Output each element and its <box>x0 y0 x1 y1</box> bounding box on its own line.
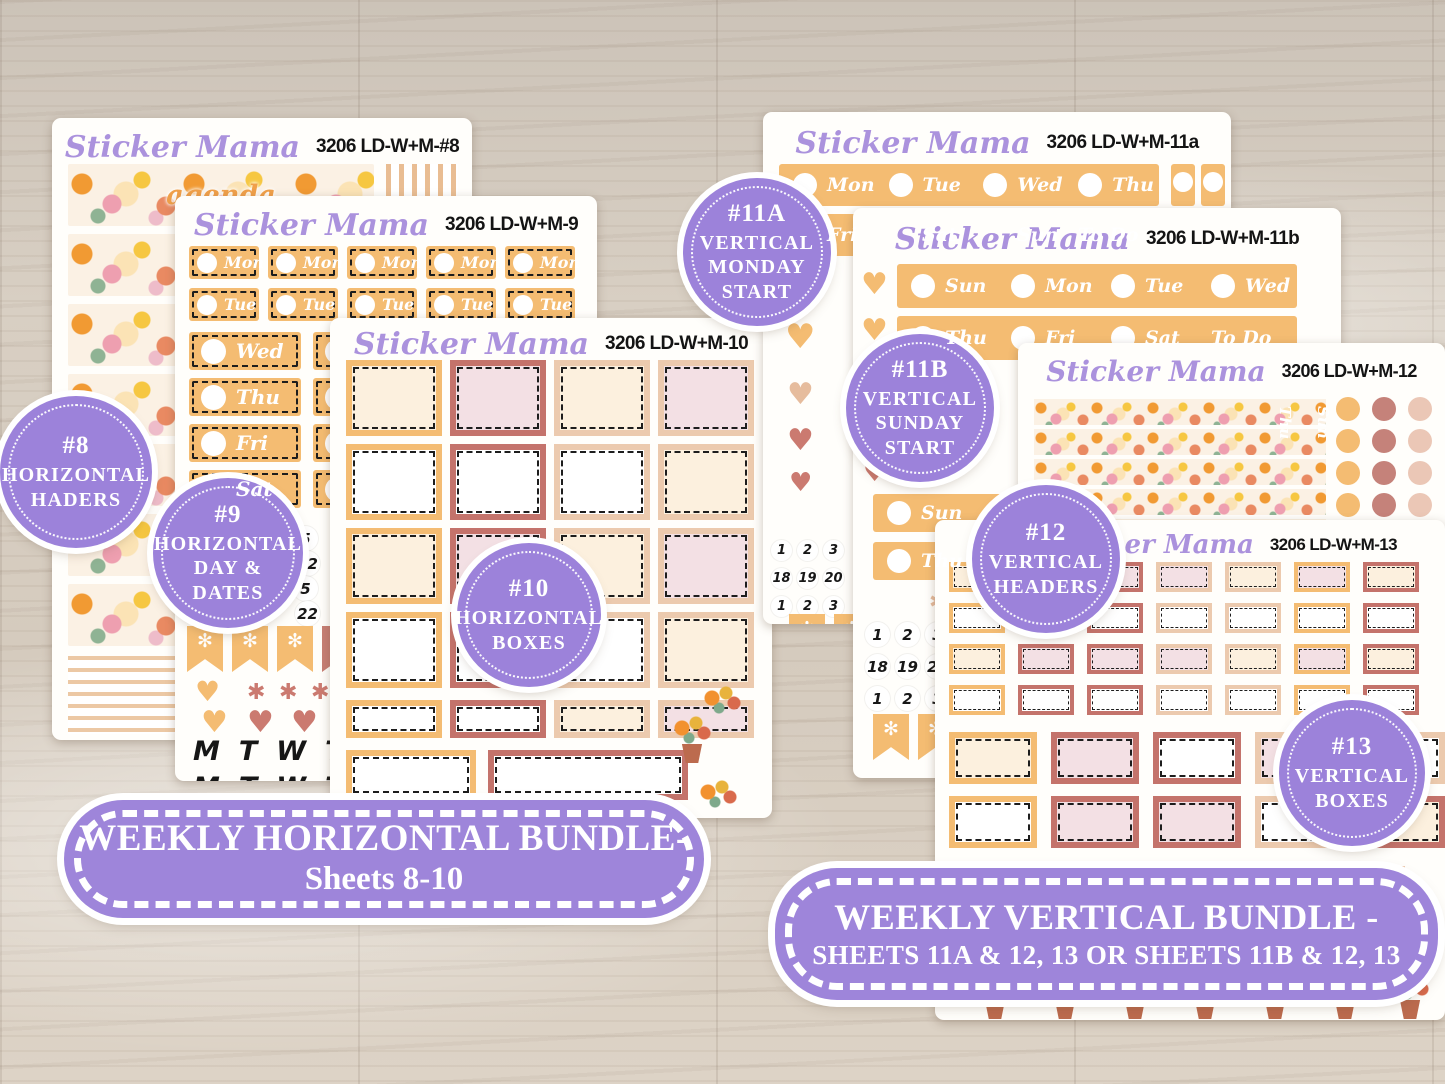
sheet-header: Sticker Mama 3206 LD-W+M-9 <box>175 208 597 242</box>
flower-cluster-sticker <box>702 686 742 714</box>
date-chip: 3 <box>823 540 844 561</box>
badge-line: VERTICAL <box>1295 764 1409 788</box>
circle-dot <box>276 295 296 315</box>
circle-dot <box>889 173 913 197</box>
day-label: Sat <box>922 224 957 246</box>
sheet-code: 3206 LD-W+M-12 <box>1282 361 1417 382</box>
day-label: Mon <box>382 253 422 272</box>
mini-tab-sticker <box>1171 164 1195 206</box>
banner-line-2: SHEETS 11A & 12, 13 OR SHEETS 11B & 12, … <box>812 939 1400 971</box>
sheet-code: 3206 LD-W+M-13 <box>1270 535 1397 555</box>
heart-icon: ♥ <box>861 270 888 300</box>
day-sticker-row: Tue Tue Tue Tue Tue <box>189 288 575 321</box>
date-chip: 1 <box>771 540 792 561</box>
bar-segment: Mon <box>997 274 1097 298</box>
badge-line: VERTICAL <box>989 550 1103 574</box>
badge-number: #9 <box>215 501 242 529</box>
box-sticker <box>1153 796 1241 848</box>
dot-sticker <box>1336 461 1360 485</box>
pot <box>1123 1000 1147 1019</box>
pot <box>1193 1000 1217 1019</box>
letter-m: M <box>193 736 220 767</box>
day-sticker-tue: Tue <box>347 288 417 321</box>
small-box-sticker <box>1363 644 1419 674</box>
flag-sticker: ✻ <box>789 614 825 624</box>
letter-t: T <box>239 736 257 767</box>
badge-line: HADERS <box>31 488 122 512</box>
sheet-header: Sticker Mama 3206 LD-W+M-10 <box>330 328 772 360</box>
pot <box>1333 1000 1357 1019</box>
day-sticker-tue: Tue <box>505 288 575 321</box>
day-label: To Do <box>1211 327 1271 349</box>
small-box-sticker <box>1294 644 1350 674</box>
small-box-sticker <box>949 685 1005 715</box>
badge-line: BOXES <box>492 631 566 655</box>
badge-11b: #11B VERTICAL SUNDAY START <box>846 334 994 482</box>
flower-icon: ✻ <box>197 630 213 672</box>
circle-dot <box>276 253 296 273</box>
box-sticker <box>346 444 442 520</box>
circle-dot <box>197 253 217 273</box>
flower-icon: ✻ <box>883 718 899 760</box>
badge-8: #8 HORIZONTAL HADERS <box>0 396 152 548</box>
flag-sticker: ✻ <box>232 626 268 672</box>
day-label: Thu <box>236 385 280 409</box>
badge-number: #10 <box>509 575 550 603</box>
badge-line: VERTICAL <box>863 387 977 411</box>
flower-icon: ✻ <box>799 618 815 624</box>
circle-dot <box>1203 172 1223 192</box>
circle-dot <box>887 549 911 573</box>
dot-sticker <box>1372 429 1396 453</box>
asterisk-icon: ✱ <box>247 682 265 704</box>
flag-sticker: ✻ <box>187 626 223 672</box>
circle-dot <box>1011 274 1035 298</box>
sheet-header: Sticker Mama 3206 LD-W+M-#8 <box>52 130 472 164</box>
small-box-sticker <box>1363 603 1419 633</box>
day-label: Thu <box>945 327 987 349</box>
circle-dot <box>355 295 375 315</box>
bar-segment: Tue <box>1097 274 1197 298</box>
day-sticker-wed: Wed <box>189 332 301 370</box>
box-sticker <box>658 612 754 688</box>
circle-dot <box>434 253 454 273</box>
badge-number: #11A <box>728 200 786 228</box>
pot <box>1053 1000 1077 1019</box>
day-label: Sun <box>1017 224 1058 246</box>
dot-sticker <box>1408 493 1432 517</box>
circle-dot <box>201 431 226 456</box>
day-sticker-tue: Tue <box>426 288 496 321</box>
badge-line: DAY & <box>194 556 262 580</box>
half-box-sticker <box>450 700 546 738</box>
half-box-sticker <box>346 750 476 800</box>
day-label: Sun <box>1314 406 1332 439</box>
bar-segment: Wed <box>1197 274 1297 298</box>
date-chip: 18 <box>771 568 792 589</box>
day-label: Sat <box>1145 327 1180 349</box>
badge-line: START <box>885 436 956 460</box>
day-label: Tue <box>303 295 335 314</box>
day-label: Wed <box>1017 174 1062 196</box>
day-label: Thu <box>1276 406 1294 439</box>
heart-icon: ♥ <box>195 678 220 706</box>
sheet-code: 3206 LD-W+M-10 <box>605 333 748 355</box>
date-chip-row: 1 2 3 <box>771 540 844 561</box>
day-label: Fri <box>1045 327 1075 349</box>
box-sticker <box>658 360 754 436</box>
small-box-sticker <box>1156 644 1212 674</box>
badge-line: BOXES <box>1315 789 1389 813</box>
washi-strip <box>68 656 182 734</box>
box-sticker <box>450 360 546 436</box>
day-label: Mon <box>461 253 501 272</box>
letter-w: W <box>276 772 306 781</box>
circle-dot <box>1211 274 1235 298</box>
box-sticker <box>346 528 442 604</box>
box-sticker <box>554 360 650 436</box>
brand-title: Sticker Mama <box>795 126 1030 161</box>
small-box-sticker <box>949 644 1005 674</box>
small-box-sticker <box>1225 603 1281 633</box>
flag-sticker: ✻ <box>277 626 313 672</box>
asterisk-icon: ✱ <box>279 682 297 704</box>
letter-m: M <box>193 772 220 781</box>
box-sticker <box>1153 732 1241 784</box>
small-box-sticker <box>1156 685 1212 715</box>
banner-line-2: Sheets 8-10 <box>305 860 464 900</box>
sheet-header: Sticker Mama 3206 LD-W+M-11a <box>763 126 1231 160</box>
sheet-code: 3206 LD-W+M-9 <box>445 214 578 236</box>
small-box-sticker <box>1087 685 1143 715</box>
mini-tab-sticker <box>1201 164 1225 206</box>
circle-dot <box>201 339 226 364</box>
box-sticker <box>658 528 754 604</box>
day-bar-sun-wed: Sun Mon Tue Wed <box>897 264 1297 308</box>
day-label: Tue <box>540 295 572 314</box>
flower-icon: ✻ <box>287 630 303 672</box>
sheet-code: 3206 LD-W+M-11b <box>1146 228 1299 250</box>
date-chip-row: 18 19 20 <box>771 568 844 589</box>
date-chip: 2 <box>797 540 818 561</box>
dot-sticker <box>1372 493 1396 517</box>
small-box-sticker <box>1156 562 1212 592</box>
badge-line: START <box>722 280 793 304</box>
day-label: Mon <box>540 253 580 272</box>
dot-sticker <box>1372 461 1396 485</box>
day-label: Mon <box>1045 275 1093 297</box>
badge-line: SUNDAY <box>876 411 965 435</box>
dot-sticker <box>1336 429 1360 453</box>
box-sticker <box>554 444 650 520</box>
day-label: Sat <box>236 477 273 501</box>
heart-icon: ♥ <box>787 426 814 456</box>
day-label: Tue <box>461 295 493 314</box>
small-box-sticker <box>1018 685 1074 715</box>
day-label: Mon <box>303 253 343 272</box>
sheet-code: 3206 LD-W+M-#8 <box>316 136 459 158</box>
small-box-sticker <box>1087 644 1143 674</box>
flower-cluster <box>672 716 712 744</box>
small-box-sticker <box>1294 603 1350 633</box>
date-chip: 1 <box>865 686 890 711</box>
dot-sticker <box>1408 397 1432 421</box>
circle-dot <box>201 385 226 410</box>
day-label: Mon <box>827 174 875 196</box>
day-label: Fri <box>827 224 857 246</box>
day-label: Sun <box>945 275 986 297</box>
badge-line: HORIZONTAL <box>455 606 603 630</box>
day-sticker-tue: Tue <box>268 288 338 321</box>
day-label: Tue <box>224 295 256 314</box>
brand-title: Sticker Mama <box>354 327 589 362</box>
dot-sticker <box>1372 397 1396 421</box>
pot <box>983 1000 1007 1019</box>
box-sticker <box>450 444 546 520</box>
letter-w: W <box>276 736 306 767</box>
weekday-letter-row: M T W T <box>193 736 344 767</box>
day-label: Thu <box>921 550 963 572</box>
banner-horizontal-bundle: WEEKLY HORIZONTAL BUNDLE- Sheets 8-10 <box>64 800 704 918</box>
day-sticker-thu: Thu <box>189 378 301 416</box>
small-box-sticker <box>1225 685 1281 715</box>
circle-dot <box>513 295 533 315</box>
badge-line: HORIZONTAL <box>2 463 150 487</box>
circle-dot <box>887 501 911 525</box>
bar-segment: Thu <box>1064 173 1159 197</box>
banner-line-1: WEEKLY HORIZONTAL BUNDLE- <box>79 818 688 861</box>
badge-12: #12 VERTICAL HEADERS <box>972 485 1120 633</box>
badge-number: #11B <box>892 356 949 384</box>
badge-line: MONDAY <box>708 255 806 279</box>
badge-number: #8 <box>63 432 90 460</box>
badge-11a: #11A VERTICAL MONDAY START <box>683 178 831 326</box>
badge-line: VERTICAL <box>700 231 814 255</box>
dot-sticker <box>1408 429 1432 453</box>
flower-icon: ✻ <box>242 630 258 672</box>
bar-segment: Wed <box>969 173 1064 197</box>
day-sticker-mon: Mon <box>347 246 417 279</box>
badge-line: HORIZONTAL <box>154 532 302 556</box>
flag-sticker: ✻ <box>873 714 909 760</box>
box-sticker <box>949 796 1037 848</box>
small-box-sticker <box>1294 562 1350 592</box>
small-box-sticker <box>1018 644 1074 674</box>
circle-dot <box>513 253 533 273</box>
dot-sticker <box>1336 397 1360 421</box>
day-label: Wed <box>236 339 284 363</box>
date-chip: 2 <box>895 622 920 647</box>
sheet-header: Sticker Mama 3206 LD-W+M-12 <box>1018 355 1445 387</box>
brand-title: Sticker Mama <box>65 130 300 165</box>
box-sticker <box>346 360 442 436</box>
pot <box>1398 1000 1422 1019</box>
heart-icon: ♥ <box>291 708 318 738</box>
box-sticker <box>658 444 754 520</box>
asterisk-icon: ✱ <box>311 682 329 704</box>
day-sticker-mon: Mon <box>189 246 259 279</box>
half-box-sticker <box>346 700 442 738</box>
date-chip: 20 <box>823 568 844 589</box>
bar-segment: Sun <box>897 274 997 298</box>
day-label: Fri <box>236 431 268 455</box>
badge-number: #13 <box>1332 733 1373 761</box>
half-box-sticker <box>488 750 688 800</box>
date-chip: 19 <box>895 654 920 679</box>
day-bar-mon-thu: Mon Tue Wed Thu <box>779 164 1159 206</box>
brand-title: Sticker Mama <box>1046 355 1265 388</box>
badge-10: #10 HORIZONTAL BOXES <box>457 543 601 687</box>
bar-segment: Tue <box>875 173 970 197</box>
small-box-sticker <box>1363 562 1419 592</box>
day-sticker-fri: Fri <box>189 424 301 462</box>
heart-icon: ♥ <box>785 320 815 354</box>
day-label: Tue <box>382 295 414 314</box>
circle-dot <box>1173 172 1193 192</box>
dot-sticker <box>1408 461 1432 485</box>
day-label: Tue <box>923 174 961 196</box>
flower-cluster-sticker <box>698 780 738 808</box>
banner-line-1: WEEKLY VERTICAL BUNDLE - <box>834 897 1379 938</box>
circle-dot <box>197 295 217 315</box>
half-box-sticker <box>554 700 650 738</box>
badge-line: DATES <box>192 581 263 605</box>
dot-sticker <box>1336 493 1360 517</box>
banner-vertical-bundle: WEEKLY VERTICAL BUNDLE - SHEETS 11A & 12… <box>775 868 1438 1000</box>
circle-dot <box>434 295 454 315</box>
box-sticker <box>949 732 1037 784</box>
day-label: Mon <box>224 253 264 272</box>
pot <box>680 744 704 763</box>
badge-9: #9 HORIZONTAL DAY & DATES <box>153 478 303 628</box>
badge-number: #12 <box>1026 519 1067 547</box>
heart-icon: ♥ <box>201 708 228 738</box>
day-label: Tue <box>1145 275 1183 297</box>
letter-t: T <box>239 772 257 781</box>
day-sticker-mon: Mon <box>426 246 496 279</box>
brand-title: Sticker Mama <box>194 208 429 243</box>
circle-dot <box>1078 173 1102 197</box>
pot <box>1263 1000 1287 1019</box>
circle-dot <box>355 253 375 273</box>
circle-dot <box>911 274 935 298</box>
heart-icon: ♥ <box>247 708 274 738</box>
day-sticker-row: Mon Mon Mon Mon Mon <box>189 246 575 279</box>
date-chip: 18 <box>865 654 890 679</box>
box-sticker <box>1051 732 1139 784</box>
day-label: Thu <box>1112 174 1154 196</box>
sheet-code: 3206 LD-W+M-11a <box>1047 132 1199 154</box>
heart-icon: ♥ <box>861 316 888 346</box>
badge-line: HEADERS <box>993 575 1098 599</box>
heart-icon: ♥ <box>787 380 814 410</box>
circle-dot <box>983 173 1007 197</box>
box-sticker <box>1051 796 1139 848</box>
small-box-sticker <box>1156 603 1212 633</box>
date-chip: 22 <box>295 601 320 626</box>
circle-dot <box>1111 274 1135 298</box>
small-box-sticker <box>1225 644 1281 674</box>
floral-header-sticker <box>1034 459 1326 485</box>
day-sticker-mon: Mon <box>268 246 338 279</box>
date-chip: 1 <box>865 622 890 647</box>
flower-pot-sticker <box>672 716 712 763</box>
day-label: Wed <box>1245 275 1290 297</box>
day-label: To Do <box>1078 224 1138 246</box>
badge-13: #13 VERTICAL BOXES <box>1279 700 1425 846</box>
small-box-sticker <box>1225 562 1281 592</box>
day-sticker-tue: Tue <box>189 288 259 321</box>
heart-icon: ♥ <box>789 470 812 496</box>
day-label: Sun <box>921 502 962 524</box>
date-chip: 2 <box>895 686 920 711</box>
day-sticker-mon: Mon <box>505 246 575 279</box>
box-sticker <box>346 612 442 688</box>
date-chip: 19 <box>797 568 818 589</box>
